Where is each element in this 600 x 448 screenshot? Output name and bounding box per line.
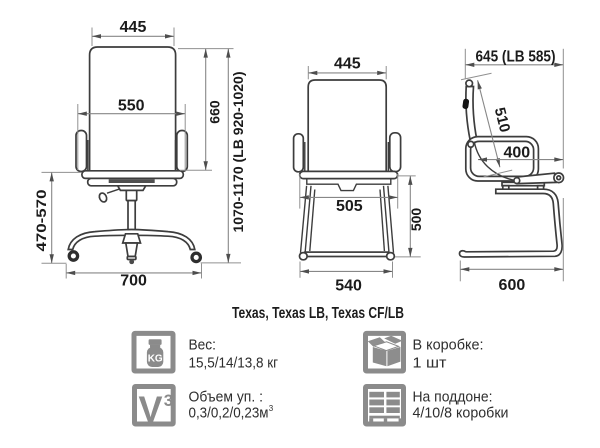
svg-text:550: 550 bbox=[118, 98, 145, 115]
svg-text:0,3/0,2/0,23м: 0,3/0,2/0,23м bbox=[189, 404, 269, 421]
svg-text:660: 660 bbox=[206, 100, 222, 124]
svg-text:4/10/8 коробки: 4/10/8 коробки bbox=[413, 404, 509, 421]
svg-text:400: 400 bbox=[503, 144, 530, 161]
svg-text:505: 505 bbox=[336, 198, 363, 215]
svg-text:645 (LB 585): 645 (LB 585) bbox=[476, 48, 556, 65]
svg-text:445: 445 bbox=[120, 19, 147, 36]
svg-text:В коробке:: В коробке: bbox=[413, 336, 484, 353]
svg-text:540: 540 bbox=[335, 277, 362, 294]
svg-text:3: 3 bbox=[164, 391, 173, 410]
svg-text:600: 600 bbox=[499, 277, 526, 294]
svg-text:700: 700 bbox=[120, 272, 147, 289]
svg-text:510: 510 bbox=[491, 106, 514, 134]
svg-text:Texas, Texas LB, Texas CF/LB: Texas, Texas LB, Texas CF/LB bbox=[232, 305, 404, 322]
svg-text:3: 3 bbox=[269, 404, 274, 413]
svg-text:1 шт: 1 шт bbox=[413, 354, 447, 371]
svg-text:1070-1170 (LB 920-1020): 1070-1170 (LB 920-1020) bbox=[231, 72, 246, 233]
svg-text:Вес:: Вес: bbox=[189, 336, 217, 353]
svg-text:KG: KG bbox=[148, 354, 163, 365]
svg-text:Объем уп. :: Объем уп. : bbox=[189, 389, 264, 406]
svg-text:500: 500 bbox=[408, 208, 424, 232]
svg-text:470-570: 470-570 bbox=[33, 189, 49, 251]
svg-text:На поддоне:: На поддоне: bbox=[413, 389, 493, 406]
svg-text:V: V bbox=[138, 388, 162, 429]
svg-text:15,5/14/13,8 кг: 15,5/14/13,8 кг bbox=[189, 354, 279, 371]
svg-text:445: 445 bbox=[334, 55, 361, 72]
